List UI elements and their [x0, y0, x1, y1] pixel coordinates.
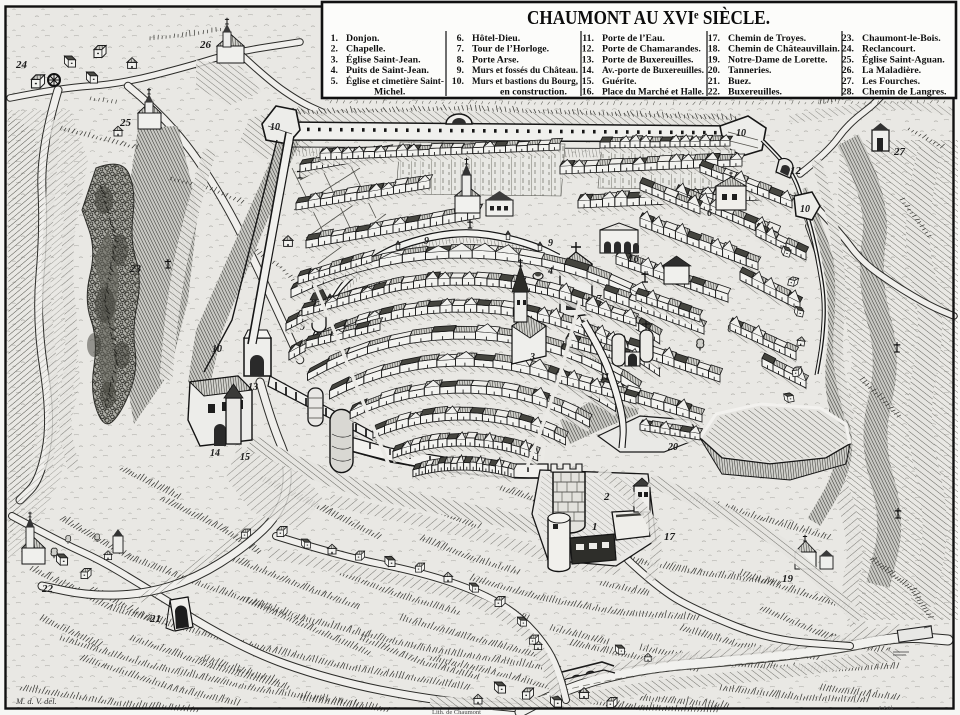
- svg-text:Chemin de Langres.: Chemin de Langres.: [862, 87, 947, 98]
- svg-text:8.: 8.: [457, 54, 465, 65]
- svg-text:16: 16: [628, 253, 640, 265]
- svg-text:4.: 4.: [331, 65, 339, 76]
- svg-text:20.: 20.: [708, 65, 721, 76]
- svg-text:9: 9: [424, 236, 429, 247]
- svg-text:11.: 11.: [582, 33, 594, 44]
- svg-text:19.: 19.: [708, 54, 721, 65]
- svg-text:Porte de Chamarandes.: Porte de Chamarandes.: [602, 44, 701, 55]
- svg-text:Lith. de Chaumont: Lith. de Chaumont: [432, 709, 481, 715]
- svg-text:12.: 12.: [582, 44, 595, 55]
- svg-text:10: 10: [736, 128, 746, 139]
- svg-text:26.: 26.: [842, 65, 855, 76]
- svg-text:24.: 24.: [842, 44, 855, 55]
- svg-text:15: 15: [240, 452, 250, 463]
- svg-text:22: 22: [41, 583, 54, 595]
- svg-text:Notre-Dame de Lorette.: Notre-Dame de Lorette.: [728, 54, 828, 65]
- svg-text:15.: 15.: [582, 76, 595, 87]
- svg-text:16.: 16.: [582, 87, 595, 98]
- svg-text:Chemin de Troyes.: Chemin de Troyes.: [728, 33, 807, 44]
- svg-text:Chemin de Châteauvillain.: Chemin de Châteauvillain.: [728, 44, 840, 55]
- svg-text:5.: 5.: [331, 76, 339, 87]
- svg-text:23.: 23.: [842, 33, 855, 44]
- svg-text:Porte Arse.: Porte Arse.: [472, 54, 519, 65]
- svg-text:2: 2: [603, 491, 610, 503]
- svg-text:3: 3: [529, 352, 535, 363]
- svg-text:7.: 7.: [457, 44, 465, 55]
- svg-text:21.: 21.: [708, 76, 721, 87]
- svg-text:24: 24: [15, 59, 28, 71]
- svg-text:27: 27: [893, 146, 906, 158]
- svg-text:28.: 28.: [842, 87, 855, 98]
- svg-text:Murs et fossés du Château.: Murs et fossés du Château.: [472, 65, 579, 76]
- svg-text:21: 21: [149, 613, 161, 625]
- svg-text:11: 11: [600, 372, 609, 383]
- svg-text:Chapelle.: Chapelle.: [346, 44, 386, 55]
- svg-text:17: 17: [664, 531, 676, 543]
- svg-text:10: 10: [270, 122, 280, 133]
- svg-text:Tanneries.: Tanneries.: [728, 65, 772, 76]
- svg-text:26: 26: [199, 39, 212, 51]
- svg-text:Puits de Saint-Jean.: Puits de Saint-Jean.: [346, 65, 430, 76]
- svg-text:22.: 22.: [708, 87, 721, 98]
- svg-text:6.: 6.: [457, 33, 465, 44]
- svg-text:14.: 14.: [582, 65, 595, 76]
- svg-text:25: 25: [119, 117, 132, 129]
- svg-text:Porte de Buxereuilles.: Porte de Buxereuilles.: [602, 54, 694, 65]
- svg-text:Les Fourches.: Les Fourches.: [862, 76, 921, 87]
- svg-text:13.: 13.: [582, 54, 595, 65]
- svg-text:4: 4: [547, 266, 553, 277]
- svg-text:Église Saint-Jean.: Église Saint-Jean.: [346, 53, 421, 65]
- svg-text:Tour de l’Horloge.: Tour de l’Horloge.: [472, 44, 550, 55]
- svg-text:La Maladière.: La Maladière.: [862, 65, 922, 76]
- svg-text:2.: 2.: [331, 44, 339, 55]
- svg-text:1.: 1.: [331, 33, 339, 44]
- svg-text:20: 20: [667, 442, 678, 453]
- svg-text:Église Saint-Aguan.: Église Saint-Aguan.: [862, 53, 945, 65]
- svg-text:9.: 9.: [457, 65, 465, 76]
- svg-text:Chaumont-le-Bois.: Chaumont-le-Bois.: [862, 33, 941, 44]
- svg-text:10: 10: [800, 204, 810, 215]
- svg-text:10.: 10.: [452, 76, 465, 87]
- svg-text:en construction.: en construction.: [500, 87, 567, 98]
- svg-text:1: 1: [592, 521, 598, 533]
- svg-text:Porte de l’Eau.: Porte de l’Eau.: [602, 33, 665, 44]
- svg-text:Michel.: Michel.: [374, 87, 406, 98]
- svg-text:14: 14: [210, 448, 220, 459]
- svg-text:23: 23: [129, 263, 142, 275]
- svg-text:CHAUMONT AU XVIᵉ SIÈCLE.: CHAUMONT AU XVIᵉ SIÈCLE.: [527, 6, 770, 29]
- svg-text:Place du Marché et Halle.: Place du Marché et Halle.: [602, 87, 705, 98]
- svg-text:Av.-porte de Buxereuilles.: Av.-porte de Buxereuilles.: [602, 65, 705, 76]
- svg-text:13: 13: [248, 382, 258, 393]
- svg-text:J. Lith.: J. Lith.: [878, 706, 895, 712]
- svg-text:Murs et bastions du Bourg,: Murs et bastions du Bourg,: [472, 76, 579, 87]
- svg-text:9: 9: [548, 238, 553, 249]
- svg-text:3.: 3.: [331, 54, 339, 65]
- svg-text:Guérite.: Guérite.: [602, 76, 637, 87]
- svg-text:10: 10: [212, 344, 222, 355]
- svg-text:M. d. V. del.: M. d. V. del.: [15, 696, 57, 706]
- svg-text:Buez.: Buez.: [728, 76, 752, 87]
- svg-text:17.: 17.: [708, 33, 721, 44]
- svg-text:Église et cimetière Saint-: Église et cimetière Saint-: [346, 75, 444, 87]
- svg-text:19: 19: [782, 573, 794, 585]
- svg-text:27.: 27.: [842, 76, 855, 87]
- svg-text:18.: 18.: [708, 44, 721, 55]
- svg-text:6: 6: [707, 208, 712, 219]
- svg-text:25.: 25.: [842, 54, 855, 65]
- svg-text:Hôtel-Dieu.: Hôtel-Dieu.: [472, 33, 521, 44]
- svg-text:12: 12: [790, 165, 802, 177]
- svg-text:Donjon.: Donjon.: [346, 33, 380, 44]
- svg-text:Reclancourt.: Reclancourt.: [862, 44, 916, 55]
- svg-text:Buxereuilles.: Buxereuilles.: [728, 87, 783, 98]
